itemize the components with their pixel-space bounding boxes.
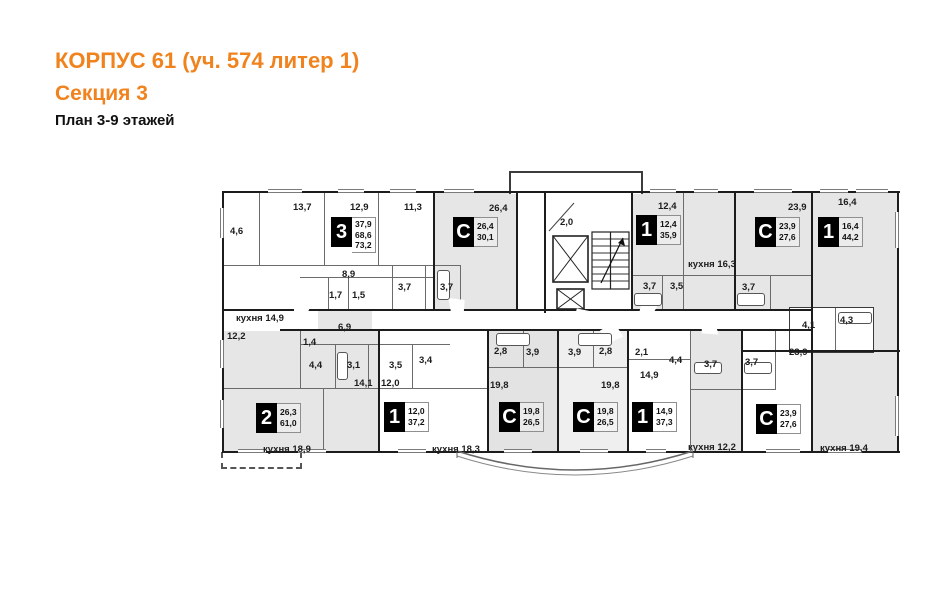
area-value: 61,0 — [280, 418, 297, 429]
apartment-label-1room-bottom-left: 1 12,0 37,2 — [384, 402, 429, 432]
room-area-label: 3,5 — [389, 360, 402, 371]
window-marker — [895, 396, 899, 436]
apartment-areas: 26,3 61,0 — [277, 403, 301, 433]
apartment-label-1room-right: 1 16,4 44,2 — [818, 217, 863, 247]
apartment-areas: 14,9 37,3 — [653, 402, 677, 432]
window-marker — [820, 189, 848, 193]
apartment-areas: 12,4 35,9 — [657, 215, 681, 245]
wall — [557, 329, 559, 453]
room-area-label: 14,9 — [640, 370, 659, 381]
room-area-label: 12,9 — [350, 202, 369, 213]
area-value: 23,9 — [780, 408, 797, 419]
room-area-label: 4,4 — [309, 360, 322, 371]
room-area-label: кухня 14,9 — [236, 313, 284, 324]
apartment-areas: 37,9 68,6 73,2 — [352, 217, 376, 253]
partition-wall — [323, 388, 324, 452]
window-marker — [856, 189, 888, 193]
room-area-label: 3,9 — [568, 347, 581, 358]
room-area-label: 3,5 — [670, 281, 683, 292]
apartment-label-3room: 3 37,9 68,6 73,2 — [331, 217, 376, 253]
bathtub-icon — [737, 293, 765, 306]
apartment-label-studio-top: С 26,4 30,1 — [453, 217, 498, 247]
area-value: 12,4 — [660, 219, 677, 230]
area-value: 26,3 — [280, 407, 297, 418]
area-value: 19,8 — [597, 406, 614, 417]
apartment-type-badge: 1 — [632, 402, 653, 432]
room-area-label: 23,9 — [789, 347, 808, 358]
partition-wall — [335, 344, 336, 389]
wall — [516, 191, 518, 311]
apartment-type-badge: С — [756, 404, 777, 434]
window-marker — [268, 189, 302, 193]
window-marker — [338, 189, 364, 193]
area-value: 26,4 — [477, 221, 494, 232]
window-marker — [646, 449, 666, 453]
room-area-label: 3,7 — [704, 359, 717, 370]
room-area-label: 1,5 — [352, 290, 365, 301]
apartment-label-1room-bottom-right: 1 14,9 37,3 — [632, 402, 677, 432]
partition-wall — [392, 265, 393, 310]
apartment-areas: 19,8 26,5 — [520, 402, 544, 432]
floor-plan-page: КОРПУС 61 (уч. 574 литер 1) Секция 3 Пла… — [0, 0, 941, 600]
wall — [741, 329, 743, 453]
room-area-label: 8,9 — [342, 269, 355, 280]
area-value: 37,3 — [656, 417, 673, 428]
room-area-label: 12,0 — [381, 378, 400, 389]
apartment-areas: 23,9 27,6 — [777, 404, 801, 434]
wall — [280, 329, 813, 331]
wall — [734, 191, 736, 311]
partition-wall — [222, 265, 434, 266]
room-area-label: 2,8 — [599, 346, 612, 357]
room-area-label: 19,8 — [601, 380, 620, 391]
elevator-stairs-core — [544, 191, 636, 317]
apartment-type-badge: С — [499, 402, 520, 432]
room-area-label: 16,4 — [838, 197, 857, 208]
room-area-label: кухня 12,2 — [688, 442, 736, 453]
partition-wall — [775, 331, 776, 390]
room-area-label: 4,3 — [840, 315, 853, 326]
window-marker — [398, 449, 426, 453]
bathtub-icon — [578, 333, 612, 346]
room-area-label: 4,1 — [802, 320, 815, 331]
apartment-type-badge: С — [573, 402, 594, 432]
window-marker — [895, 212, 899, 248]
room-area-label: 3,4 — [419, 355, 432, 366]
partition-wall — [348, 277, 349, 310]
area-value: 37,2 — [408, 417, 425, 428]
room-area-label: кухня 16,3 — [688, 259, 736, 270]
window-marker — [694, 189, 718, 193]
room-area-label: кухня 18,9 — [263, 444, 311, 455]
apartment-label-studio-bottom-left: С 19,8 26,5 — [499, 402, 544, 432]
partition-wall — [324, 193, 325, 266]
room-area-label: 6,9 — [338, 322, 351, 333]
area-value: 12,0 — [408, 406, 425, 417]
partition-wall — [735, 275, 812, 276]
room-area-label: 4,4 — [669, 355, 682, 366]
window-marker — [220, 208, 224, 238]
area-value: 73,2 — [355, 240, 372, 251]
area-value: 16,4 — [842, 221, 859, 232]
room-area-label: 2,8 — [494, 346, 507, 357]
window-marker — [238, 449, 266, 453]
partition-wall — [300, 344, 450, 345]
room-area-label: 3,9 — [526, 347, 539, 358]
partition-wall — [662, 275, 663, 310]
partition-wall — [770, 275, 771, 310]
room-area-label: 3,7 — [398, 282, 411, 293]
window-marker — [220, 400, 224, 428]
area-value: 37,9 — [355, 219, 372, 230]
apartment-type-badge: 3 — [331, 217, 352, 247]
room-area-label: 3,1 — [347, 360, 360, 371]
partition-wall — [412, 344, 413, 389]
apartment-label-studio-bottom-center: С 19,8 26,5 — [573, 402, 618, 432]
area-value: 23,9 — [779, 221, 796, 232]
room-area-label: кухня 18,3 — [432, 444, 480, 455]
building-title: КОРПУС 61 (уч. 574 литер 1) — [55, 48, 359, 74]
bathtub-icon — [634, 293, 662, 306]
apartment-type-badge: 1 — [384, 402, 405, 432]
room-area-label: 3,7 — [440, 282, 453, 293]
apartment-label-studio-top-right: С 23,9 27,6 — [755, 217, 800, 247]
window-marker — [650, 189, 676, 193]
apartment-area — [690, 331, 742, 452]
plan-floors-label: План 3-9 этажей — [55, 112, 175, 129]
window-marker — [504, 449, 532, 453]
room-area-label: 13,7 — [293, 202, 312, 213]
wall — [378, 329, 380, 453]
room-area-label: 11,3 — [404, 202, 422, 213]
window-marker — [580, 449, 608, 453]
area-value: 27,6 — [779, 232, 796, 243]
apartment-type-badge: 2 — [256, 403, 277, 433]
partition-wall — [300, 331, 301, 389]
room-area-label: 1,7 — [329, 290, 342, 301]
area-value: 26,5 — [597, 417, 614, 428]
apartment-areas: 19,8 26,5 — [594, 402, 618, 432]
area-value: 44,2 — [842, 232, 859, 243]
area-value: 27,6 — [780, 419, 797, 430]
room-area-label: 3,7 — [643, 281, 656, 292]
window-marker — [766, 449, 800, 453]
apartment-label-studio-bottom-right: С 23,9 27,6 — [756, 404, 801, 434]
room-area-label: 26,4 — [489, 203, 508, 214]
partition-wall — [259, 193, 260, 266]
apartment-label-1room-top: 1 12,4 35,9 — [636, 215, 681, 245]
room-area-label: 3,7 — [742, 282, 755, 293]
wall — [433, 191, 435, 311]
room-area-label: кухня 19,4 — [820, 443, 868, 454]
partition-wall — [300, 277, 434, 278]
wall — [627, 329, 629, 453]
wall — [741, 350, 900, 352]
room-area-label: 12,2 — [227, 331, 246, 342]
apartment-areas: 12,0 37,2 — [405, 402, 429, 432]
area-value: 26,5 — [523, 417, 540, 428]
partition-wall — [690, 331, 691, 452]
area-value: 68,6 — [355, 230, 372, 241]
apartment-label-2room: 2 26,3 61,0 — [256, 403, 301, 433]
area-value: 30,1 — [477, 232, 494, 243]
wall — [487, 329, 489, 453]
partition-wall — [425, 265, 426, 310]
room-area-label: 12,4 — [658, 201, 677, 212]
room-area-label: 19,8 — [490, 380, 509, 391]
window-marker — [444, 189, 474, 193]
apartment-type-badge: 1 — [818, 217, 839, 247]
window-marker — [390, 189, 416, 193]
partition-wall — [835, 308, 836, 352]
room-area-label: 3,7 — [745, 357, 758, 368]
room-area-label: 14,1 — [354, 378, 373, 389]
apartment-type-badge: С — [755, 217, 776, 247]
room-area-label: 2,0 — [560, 217, 573, 228]
partition-wall — [683, 193, 684, 310]
section-title: Секция 3 — [55, 82, 148, 106]
partition-wall — [690, 389, 776, 390]
wall — [222, 309, 813, 311]
area-value: 14,9 — [656, 406, 673, 417]
partition-wall — [632, 275, 735, 276]
apartment-areas: 26,4 30,1 — [474, 217, 498, 247]
room-area-label: 23,9 — [788, 202, 807, 213]
window-marker — [754, 189, 792, 193]
room-area-label: 4,6 — [230, 226, 243, 237]
partition-wall — [434, 265, 461, 266]
area-value: 35,9 — [660, 230, 677, 241]
room-area-label: 2,1 — [635, 347, 648, 358]
partition-wall — [378, 193, 379, 266]
curved-balcony — [447, 449, 703, 491]
window-marker — [220, 340, 224, 368]
apartment-type-badge: 1 — [636, 215, 657, 245]
bathtub-icon — [496, 333, 530, 346]
area-value: 19,8 — [523, 406, 540, 417]
room-area-label: 1,4 — [303, 337, 316, 348]
apartment-type-badge: С — [453, 217, 474, 247]
apartment-areas: 16,4 44,2 — [839, 217, 863, 247]
apartment-areas: 23,9 27,6 — [776, 217, 800, 247]
